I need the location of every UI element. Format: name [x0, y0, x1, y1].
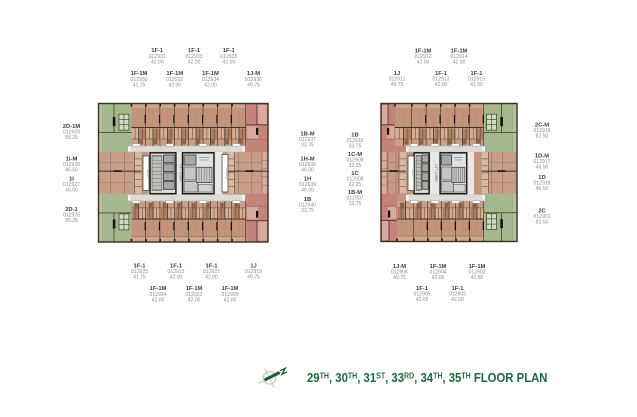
svg-text:82.50: 82.50: [536, 134, 549, 140]
svg-text:46.50: 46.50: [65, 168, 78, 174]
svg-text:42.00: 42.00: [188, 297, 201, 303]
svg-text:46.00: 46.00: [301, 168, 314, 174]
svg-text:42.00: 42.00: [416, 297, 429, 303]
svg-text:42.00: 42.00: [188, 59, 201, 65]
svg-text:42.00: 42.00: [168, 82, 181, 88]
svg-text:46.50: 46.50: [536, 186, 549, 192]
svg-text:46.50: 46.50: [536, 165, 549, 171]
svg-text:42.00: 42.00: [432, 275, 445, 281]
svg-text:33.75: 33.75: [301, 208, 314, 214]
svg-text:41.75: 41.75: [133, 275, 146, 281]
svg-text:42.00: 42.00: [152, 297, 165, 303]
svg-text:42.00: 42.00: [222, 59, 235, 65]
svg-text:46.00: 46.00: [301, 188, 314, 194]
svg-text:41.50: 41.50: [471, 275, 484, 281]
svg-text:42.00: 42.00: [453, 60, 466, 66]
svg-text:42.00: 42.00: [224, 297, 237, 303]
svg-text:SERVICE: SERVICE: [225, 167, 229, 179]
svg-text:42.00: 42.00: [435, 82, 448, 88]
svg-text:VOID: VOID: [146, 170, 150, 177]
svg-text:29TH, 30TH, 31ST, 33RD, 34TH,: 29TH, 30TH, 31ST, 33RD, 34TH, 35TH FLOOR…: [307, 371, 548, 385]
svg-text:42.00: 42.00: [417, 60, 430, 66]
svg-text:42.00: 42.00: [205, 275, 218, 281]
svg-text:49.75: 49.75: [393, 275, 406, 281]
svg-text:42.00: 42.00: [451, 297, 464, 303]
svg-text:41.75: 41.75: [133, 82, 146, 88]
svg-text:33.75: 33.75: [349, 144, 362, 150]
svg-text:85.25: 85.25: [65, 218, 78, 224]
svg-text:42.00: 42.00: [151, 59, 164, 65]
svg-text:46.50: 46.50: [65, 188, 78, 194]
svg-text:49.75: 49.75: [391, 82, 404, 88]
svg-text:41.50: 41.50: [470, 82, 483, 88]
svg-text:49.75: 49.75: [247, 82, 260, 88]
svg-text:VOID: VOID: [411, 170, 415, 177]
svg-text:82.50: 82.50: [536, 220, 549, 226]
svg-text:33.75: 33.75: [349, 201, 362, 207]
svg-text:LIFT LOBBY: LIFT LOBBY: [434, 164, 438, 183]
svg-text:32.25: 32.25: [349, 163, 362, 169]
svg-text:42.00: 42.00: [170, 275, 183, 281]
svg-text:49.75: 49.75: [247, 275, 260, 281]
svg-text:85.25: 85.25: [65, 135, 78, 141]
svg-text:33.75: 33.75: [301, 143, 314, 149]
svg-text:42.00: 42.00: [204, 82, 217, 88]
svg-text:32.25: 32.25: [349, 182, 362, 188]
svg-text:LIFT LOBBY: LIFT LOBBY: [179, 164, 183, 183]
